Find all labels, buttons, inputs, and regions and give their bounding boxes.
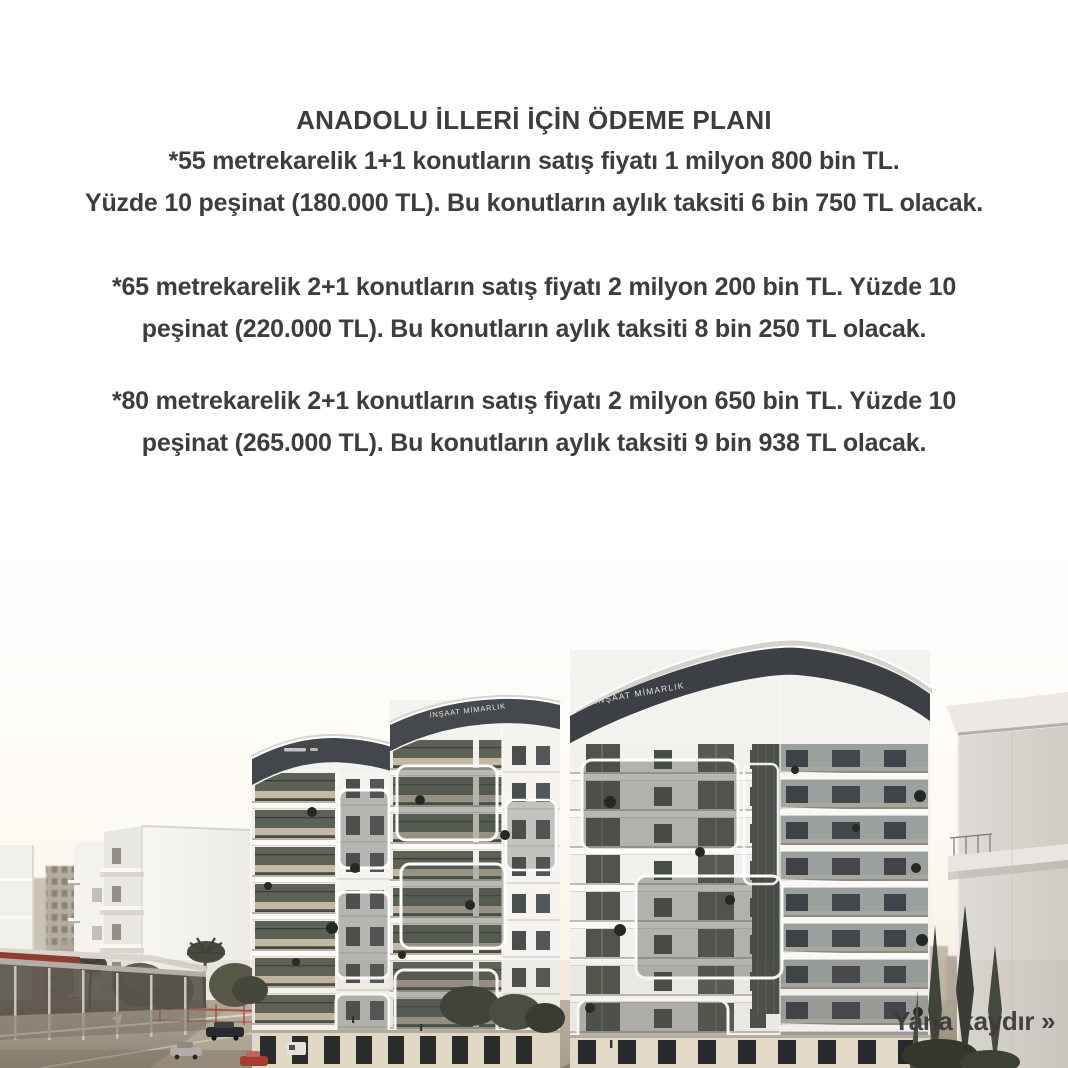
plan-paragraph-65m2: *65 metrekarelik 2+1 konutların satış fi… bbox=[0, 266, 1068, 350]
plan-line: *80 metrekarelik 2+1 konutların satış fi… bbox=[0, 380, 1068, 422]
plan-line: *65 metrekarelik 2+1 konutların satış fi… bbox=[0, 266, 1068, 308]
page-title: ANADOLU İLLERİ İÇİN ÖDEME PLANI bbox=[0, 0, 1068, 136]
payment-plan-text: ANADOLU İLLERİ İÇİN ÖDEME PLANI *55 metr… bbox=[0, 0, 1068, 464]
plan-paragraph-80m2: *80 metrekarelik 2+1 konutların satış fi… bbox=[0, 380, 1068, 464]
plan-line: Yüzde 10 peşinat (180.000 TL). Bu konutl… bbox=[0, 182, 1068, 224]
plan-line: peşinat (265.000 TL). Bu konutların aylı… bbox=[0, 422, 1068, 464]
plan-paragraph-55m2: *55 metrekarelik 1+1 konutların satış fi… bbox=[0, 140, 1068, 224]
plan-line: peşinat (220.000 TL). Bu konutların aylı… bbox=[0, 308, 1068, 350]
swipe-hint[interactable]: Yana kaydır » bbox=[893, 1006, 1068, 1037]
promo-slide: ANADOLU İLLERİ İÇİN ÖDEME PLANI *55 metr… bbox=[0, 0, 1068, 1068]
plan-line: *55 metrekarelik 1+1 konutların satış fi… bbox=[0, 140, 1068, 182]
building-sign-mark bbox=[284, 748, 318, 752]
project-render-photo: İNŞAAT MİMARLIK bbox=[0, 540, 1068, 1068]
